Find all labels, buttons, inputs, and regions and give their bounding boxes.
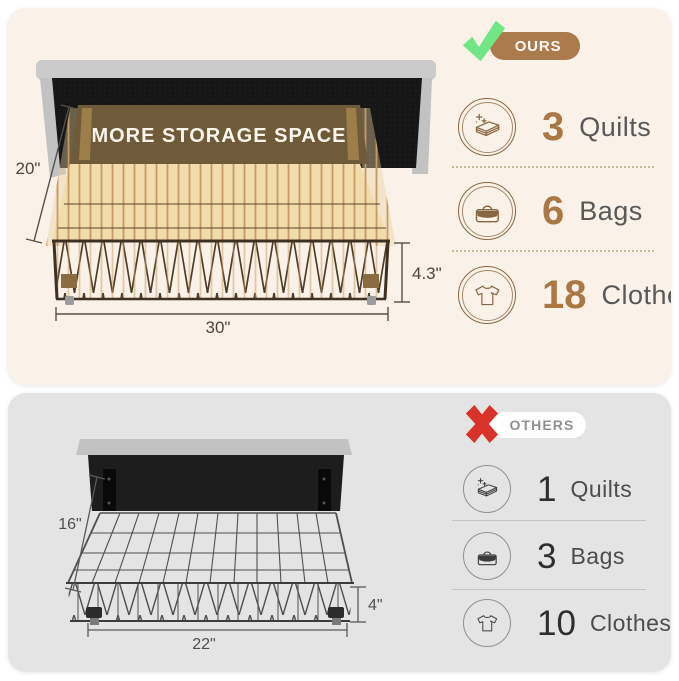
width-dimension-label: 22" <box>192 636 215 653</box>
tshirt-icon <box>458 266 516 324</box>
ours-drawer: MORE STORAGE SPACE <box>46 105 396 305</box>
storage-comparison-graphic: MORE STORAGE SPACE <box>0 0 679 681</box>
stat-row-clothes: 18 Clothes <box>454 263 671 327</box>
bed-frame <box>36 60 436 178</box>
quilt-icon <box>463 465 511 513</box>
side-height-dimension-label: 4.3" <box>412 264 442 283</box>
others-badge-label: OTHERS <box>510 417 575 433</box>
left-bracket <box>103 469 116 511</box>
side-height-dimension-label: 4" <box>368 597 383 614</box>
left-caster-wheel <box>65 296 74 305</box>
quilt-count: 1 <box>537 472 556 507</box>
x-icon <box>463 402 501 446</box>
others-badge: OTHERS <box>490 412 586 438</box>
check-icon <box>459 19 509 63</box>
width-dimension-label: 30" <box>206 318 231 337</box>
quilt-label: Quilts <box>579 114 651 141</box>
tshirt-icon <box>463 599 511 647</box>
stat-row-bags: 3 Bags <box>457 528 625 584</box>
right-bracket <box>318 469 331 511</box>
stat-row-clothes: 10 Clothes <box>457 595 671 651</box>
row-separator <box>452 250 654 252</box>
left-caster <box>86 607 102 618</box>
stat-row-quilts: 1 Quilts <box>457 461 632 517</box>
row-separator <box>452 589 646 590</box>
bed-frame <box>76 439 352 511</box>
bag-count: 6 <box>542 191 564 231</box>
bag-icon <box>458 182 516 240</box>
bag-label: Bags <box>570 545 624 568</box>
banner-text: MORE STORAGE SPACE <box>91 125 346 147</box>
right-caster-wheel <box>332 618 341 625</box>
bag-icon <box>463 532 511 580</box>
bag-label: Bags <box>579 198 643 225</box>
row-separator <box>452 166 654 168</box>
ours-badge-label: OURS <box>515 38 562 55</box>
clothes-count: 10 <box>537 606 576 641</box>
storage-banner: MORE STORAGE SPACE <box>70 105 368 164</box>
clothes-label: Clothes <box>602 282 672 309</box>
dimension-lines-others <box>65 475 366 637</box>
others-panel: 16" 4" 22" OTHERS 1 Quilts 3 Bags <box>8 393 671 672</box>
right-caster <box>328 607 344 618</box>
right-caster-wheel <box>367 296 376 305</box>
stat-row-quilts: 3 Quilts <box>454 95 651 159</box>
ours-panel: MORE STORAGE SPACE <box>8 8 671 385</box>
right-foot <box>363 274 379 288</box>
bag-count: 3 <box>537 539 556 574</box>
clothes-label: Clothes <box>590 612 671 635</box>
row-separator <box>452 520 646 521</box>
quilt-icon <box>458 98 516 156</box>
depth-dimension-label: 16" <box>58 516 81 533</box>
stat-row-bags: 6 Bags <box>454 179 643 243</box>
clothes-count: 18 <box>542 275 587 315</box>
depth-dimension-label: 20" <box>16 159 41 178</box>
others-drawer <box>68 513 352 583</box>
quilt-label: Quilts <box>570 478 632 501</box>
left-foot <box>61 274 77 288</box>
left-caster-wheel <box>90 618 99 625</box>
dimension-lines-ours <box>26 105 410 321</box>
quilt-count: 3 <box>542 107 564 147</box>
